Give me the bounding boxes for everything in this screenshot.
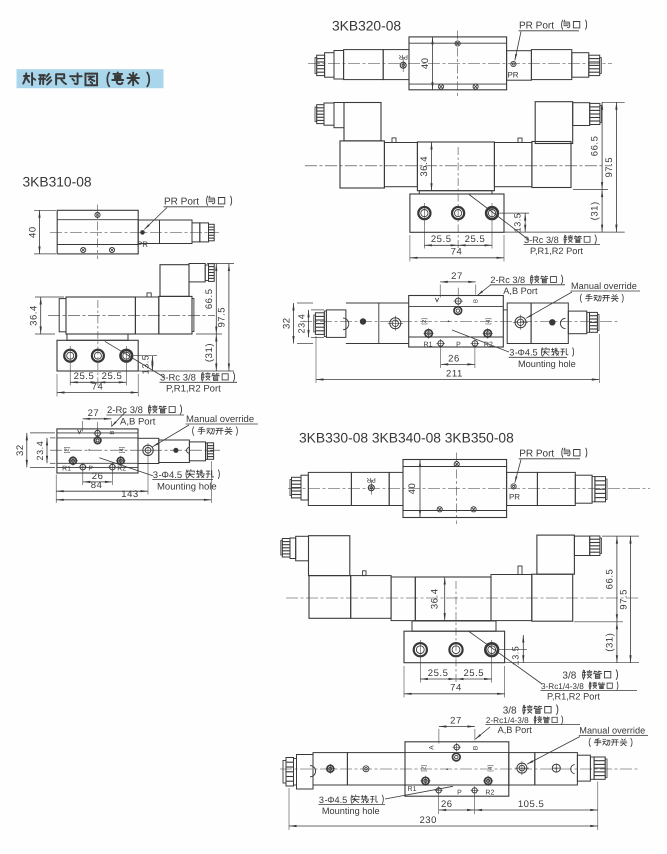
svg-text:R1: R1 [424, 342, 433, 349]
svg-text:66.5: 66.5 [604, 569, 615, 590]
svg-text:B: B [109, 431, 116, 435]
svg-text:[4]: [4] [485, 318, 492, 325]
svg-text:105.5: 105.5 [518, 799, 545, 810]
svg-text:74: 74 [92, 381, 104, 392]
svg-text:27: 27 [451, 271, 463, 282]
svg-text:Manual override: Manual override [571, 281, 637, 291]
svg-text:Mounting hole: Mounting hole [322, 806, 380, 816]
svg-text:A,B Port: A,B Port [498, 725, 533, 735]
svg-text:[2]: [2] [421, 765, 428, 772]
svg-text:3-Rc 3/8: 3-Rc 3/8 [524, 235, 559, 245]
svg-text:3/8: 3/8 [503, 706, 517, 717]
svg-text:P: P [457, 790, 462, 797]
svg-text:66.5: 66.5 [204, 288, 215, 309]
svg-text:R2: R2 [485, 790, 494, 797]
svg-text:230: 230 [419, 815, 437, 826]
svg-text:74: 74 [450, 683, 462, 694]
svg-text:R1: R1 [408, 786, 417, 793]
svg-text:Manual override: Manual override [579, 726, 645, 736]
svg-text:(31): (31) [590, 201, 601, 220]
svg-text:36.4: 36.4 [430, 588, 441, 609]
svg-text:2-Rc1/4-3/8: 2-Rc1/4-3/8 [486, 716, 529, 725]
svg-text:36.4: 36.4 [29, 305, 40, 326]
svg-text:2-Rc 3/8: 2-Rc 3/8 [107, 405, 143, 416]
svg-text:32: 32 [282, 317, 293, 329]
svg-text:B: B [473, 299, 480, 303]
svg-text:26: 26 [448, 354, 460, 365]
svg-text:74: 74 [451, 247, 463, 258]
svg-text:25.5: 25.5 [465, 234, 486, 245]
svg-text:P,R1,R2 Port: P,R1,R2 Port [530, 246, 583, 256]
svg-text:PR: PR [137, 240, 148, 249]
svg-text:40: 40 [420, 57, 431, 69]
svg-text:PR Port: PR Port [519, 21, 554, 32]
svg-text:[2]: [2] [421, 318, 428, 325]
svg-text:27: 27 [450, 716, 462, 727]
svg-text:66.5: 66.5 [590, 136, 601, 157]
svg-text:27: 27 [88, 408, 100, 419]
svg-text:PR Port: PR Port [519, 449, 554, 460]
svg-text:PR Port: PR Port [164, 197, 199, 208]
svg-text:Manual override: Manual override [186, 414, 254, 425]
svg-text:Mounting hole: Mounting hole [518, 359, 576, 369]
svg-text:211: 211 [446, 369, 463, 380]
svg-text:A,B Port: A,B Port [120, 417, 156, 428]
svg-text:P,R1,R2 Port: P,R1,R2 Port [166, 384, 221, 395]
svg-text:32: 32 [15, 444, 26, 456]
svg-text:97.5: 97.5 [604, 157, 615, 178]
svg-text:36.4: 36.4 [419, 156, 430, 177]
svg-text:13.5: 13.5 [140, 355, 150, 375]
svg-text:B: B [472, 746, 479, 750]
svg-text:PR: PR [507, 71, 518, 80]
svg-text:2-Rc 3/8: 2-Rc 3/8 [490, 275, 525, 285]
svg-text:Φ4.5: Φ4.5 [518, 348, 538, 358]
svg-text:97.5: 97.5 [618, 589, 629, 610]
svg-text:25.5: 25.5 [463, 668, 484, 679]
svg-text:P: P [456, 342, 461, 349]
svg-text:A,B Port: A,B Port [503, 286, 538, 296]
svg-text:23.4: 23.4 [297, 314, 307, 334]
svg-text:3-Rc 3/8: 3-Rc 3/8 [160, 373, 196, 384]
svg-text:3KB330-08 3KB340-08 3KB350-0: 3KB330-08 3KB340-08 3KB350-08 [299, 431, 514, 446]
svg-text:(31): (31) [604, 633, 615, 652]
svg-text:Φ4.5: Φ4.5 [327, 795, 347, 805]
svg-text:A: A [428, 745, 435, 750]
svg-text:25.5: 25.5 [102, 371, 123, 382]
svg-text:3-Rc1/4-3/8: 3-Rc1/4-3/8 [541, 682, 584, 691]
svg-text:3KB320-08: 3KB320-08 [332, 19, 401, 34]
svg-text:R1: R1 [62, 466, 71, 473]
svg-text:13.5: 13.5 [513, 213, 523, 233]
svg-text:25.5: 25.5 [428, 668, 449, 679]
svg-text:26: 26 [441, 799, 453, 810]
svg-text:40: 40 [407, 483, 418, 495]
svg-text:(31): (31) [204, 343, 215, 362]
svg-text:23.4: 23.4 [35, 441, 45, 461]
svg-text:PR: PR [509, 493, 520, 502]
svg-text:84: 84 [91, 480, 103, 491]
svg-text:143: 143 [121, 489, 139, 500]
svg-text:25.5: 25.5 [431, 234, 452, 245]
svg-text:40: 40 [28, 226, 39, 238]
svg-text:3/8: 3/8 [562, 671, 576, 682]
svg-text:97.5: 97.5 [217, 307, 228, 328]
svg-text:[2]: [2] [64, 446, 71, 453]
svg-text:Φ4.5: Φ4.5 [161, 470, 182, 481]
svg-text:[4]: [4] [118, 446, 125, 453]
svg-text:P,R1,R2 Port: P,R1,R2 Port [547, 692, 600, 702]
svg-text:Mounting hole: Mounting hole [157, 482, 217, 493]
svg-text:[4]: [4] [487, 765, 494, 772]
svg-text:3KB310-08: 3KB310-08 [23, 175, 92, 190]
